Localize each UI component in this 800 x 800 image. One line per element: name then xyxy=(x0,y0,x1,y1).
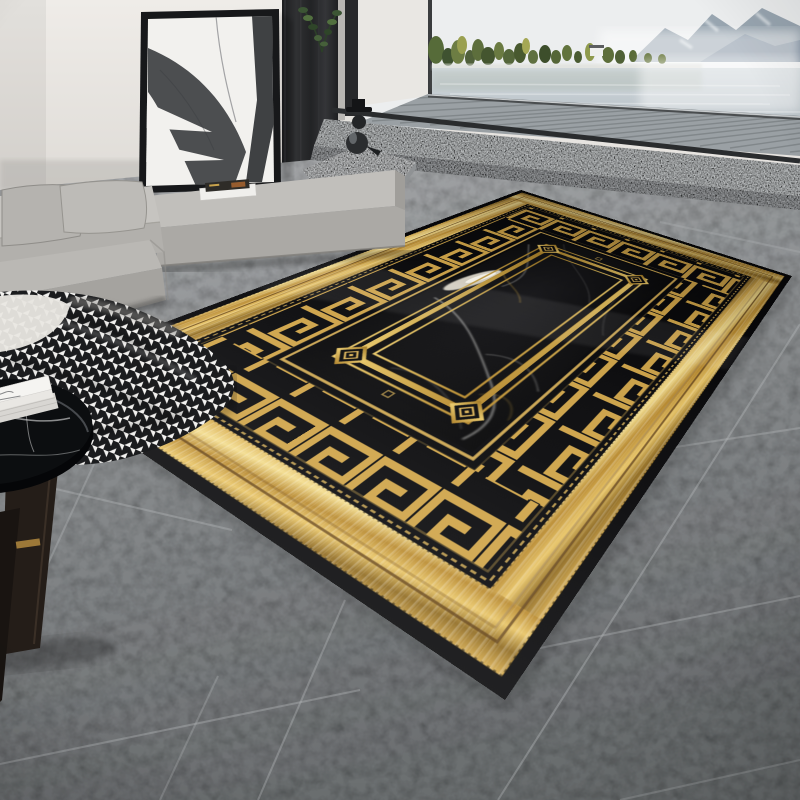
vignette xyxy=(0,0,800,800)
foreground xyxy=(0,0,800,800)
living-room-photo xyxy=(0,0,800,800)
